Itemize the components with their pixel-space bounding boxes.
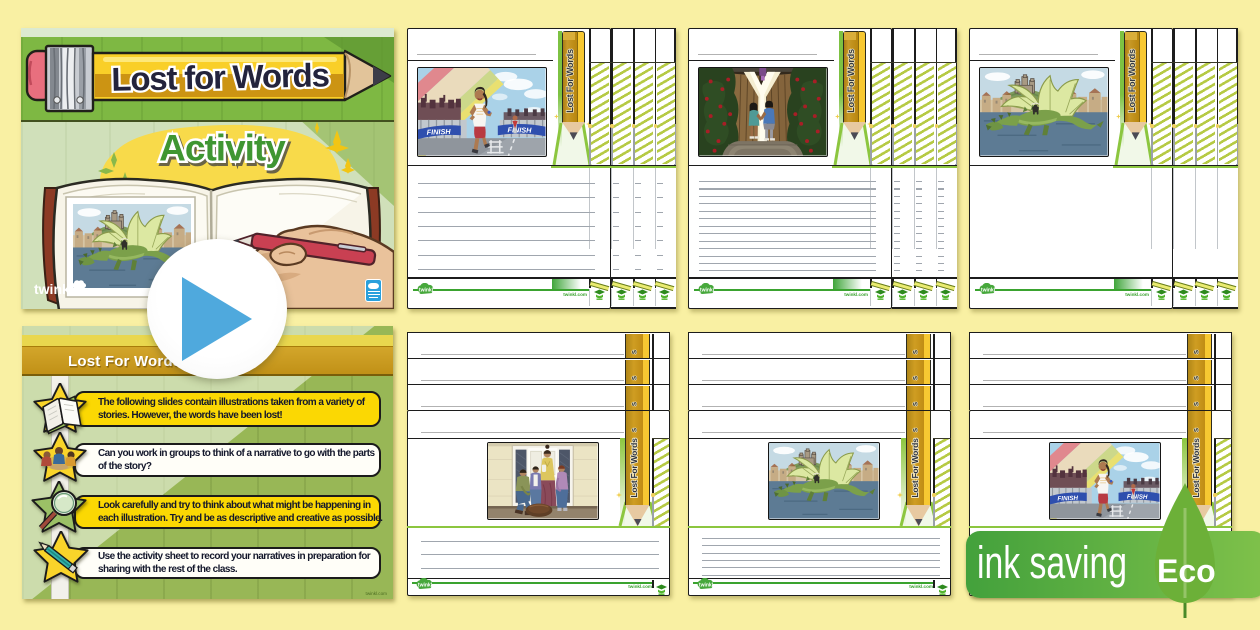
svg-text:s: s <box>911 349 920 354</box>
svg-text:twinkl: twinkl <box>34 281 74 297</box>
svg-text:s: s <box>1192 349 1201 354</box>
svg-text:s: s <box>1192 401 1201 406</box>
svg-text:twinkl: twinkl <box>981 287 996 293</box>
svg-text:Lost For Words: Lost For Words <box>629 438 639 498</box>
svg-text:s: s <box>630 349 639 354</box>
svg-text:s: s <box>630 401 639 406</box>
svg-text:FINISH: FINISH <box>507 125 532 134</box>
svg-text:twinkl: twinkl <box>419 287 434 293</box>
svg-text:Lost For Words: Lost For Words <box>910 438 920 498</box>
svg-text:Lost For Words: Lost For Words <box>846 49 856 113</box>
svg-text:Lost for Words: Lost for Words <box>111 56 329 98</box>
svg-text:twinkl: twinkl <box>700 287 715 293</box>
svg-text:FINISH: FINISH <box>1057 495 1078 503</box>
svg-text:FINISH: FINISH <box>1127 493 1148 500</box>
svg-text:twinkl: twinkl <box>418 582 433 588</box>
svg-text:Lost For Words: Lost For Words <box>565 49 575 113</box>
svg-text:twinkl: twinkl <box>699 582 714 588</box>
svg-text:s: s <box>630 375 639 380</box>
svg-text:s: s <box>1192 375 1201 380</box>
svg-text:s: s <box>911 401 920 406</box>
svg-text:s: s <box>911 375 920 380</box>
svg-text:FINISH: FINISH <box>427 127 452 137</box>
svg-text:Lost For Words: Lost For Words <box>1127 49 1137 113</box>
